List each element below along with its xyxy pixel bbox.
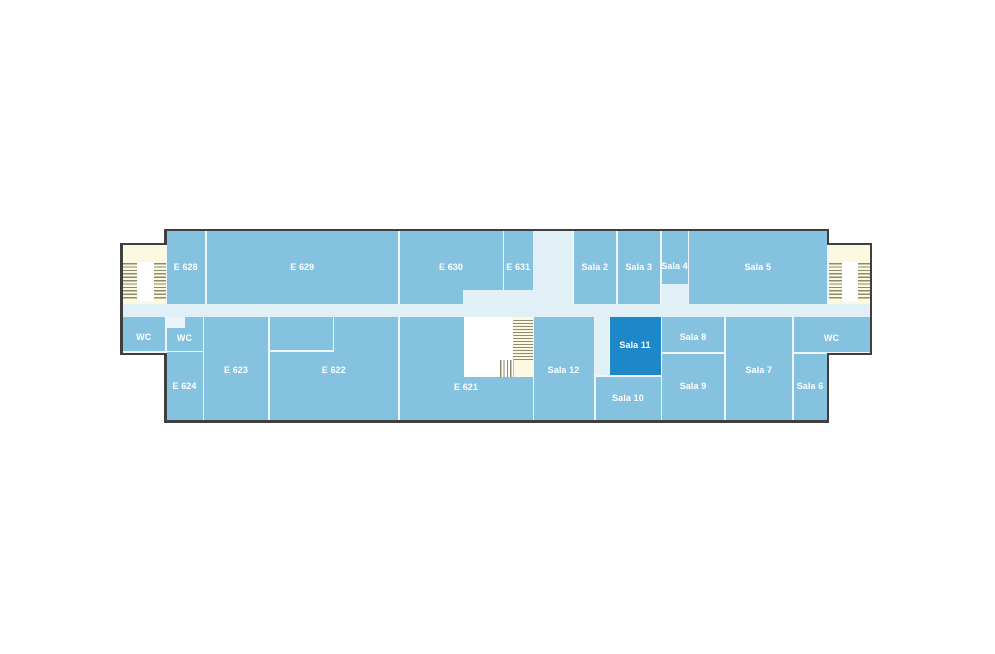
e622-partition-line-horizontal xyxy=(270,350,335,352)
e621-stairs-treads-vertical xyxy=(500,360,514,377)
room-e629-label: E 629 xyxy=(290,263,314,272)
room-sala9: Sala 9 xyxy=(662,354,724,421)
corridor-notch-e630 xyxy=(463,290,533,304)
room-sala2: Sala 2 xyxy=(574,231,617,304)
room-sala4: Sala 4 xyxy=(662,231,688,284)
left-stairs-treads-outer xyxy=(123,263,137,300)
room-sala3-label: Sala 3 xyxy=(625,263,652,272)
room-wc-center-label: WC xyxy=(177,334,192,343)
room-sala11-label: Sala 11 xyxy=(619,341,650,350)
room-sala5: Sala 5 xyxy=(689,231,827,304)
room-e629: E 629 xyxy=(207,231,399,304)
e622-partition-line-vertical xyxy=(333,317,335,352)
room-sala10: Sala 10 xyxy=(596,377,661,421)
right-stairs-treads-inner xyxy=(829,263,842,300)
room-sala12-label: Sala 12 xyxy=(548,366,580,375)
room-sala5-label: Sala 5 xyxy=(744,263,771,272)
room-sala7: Sala 7 xyxy=(726,317,793,421)
room-e624: E 624 xyxy=(167,352,203,420)
left-stairs-treads-inner xyxy=(154,263,166,300)
room-sala8: Sala 8 xyxy=(662,317,724,353)
right-stairs-treads-outer xyxy=(858,263,870,300)
room-sala6-label: Sala 6 xyxy=(797,382,824,391)
room-sala6: Sala 6 xyxy=(794,354,827,421)
right-stairwell-landing xyxy=(842,262,859,301)
room-e624-label: E 624 xyxy=(172,382,196,391)
room-e628-label: E 628 xyxy=(174,263,198,272)
room-wc-right-label: WC xyxy=(824,334,839,343)
room-sala10-label: Sala 10 xyxy=(612,394,644,403)
room-wc-left-label: WC xyxy=(136,333,151,342)
room-sala12: Sala 12 xyxy=(534,317,594,421)
e621-stairs-treads-horizontal xyxy=(513,320,533,360)
corridor-spur-sala11 xyxy=(595,317,609,375)
room-wc-right: WC xyxy=(794,317,870,353)
room-sala11: Sala 11 xyxy=(610,317,661,375)
corridor-vertical xyxy=(533,231,573,317)
room-wc-left: WC xyxy=(123,317,166,352)
corridor-notch-sala4 xyxy=(662,284,688,304)
room-e631-label: E 631 xyxy=(506,263,530,272)
room-sala2-label: Sala 2 xyxy=(581,263,608,272)
room-e622-label: E 622 xyxy=(322,366,346,375)
left-stairwell-landing xyxy=(137,262,154,301)
room-sala9-label: Sala 9 xyxy=(680,382,707,391)
corridor-main xyxy=(123,304,870,317)
room-sala8-label: Sala 8 xyxy=(680,333,707,342)
room-sala4-label: Sala 4 xyxy=(661,262,688,271)
room-e623-label: E 623 xyxy=(224,366,248,375)
wc-entrance-recess xyxy=(167,317,185,329)
room-sala3: Sala 3 xyxy=(618,231,661,304)
room-e621-label: E 621 xyxy=(454,383,478,392)
room-sala7-label: Sala 7 xyxy=(745,366,772,375)
floorplan-stage: E 628E 629E 630E 631Sala 2Sala 3Sala 4Sa… xyxy=(0,0,995,654)
room-e623: E 623 xyxy=(204,317,268,421)
room-e630-label: E 630 xyxy=(439,263,463,272)
room-e628: E 628 xyxy=(167,231,206,304)
